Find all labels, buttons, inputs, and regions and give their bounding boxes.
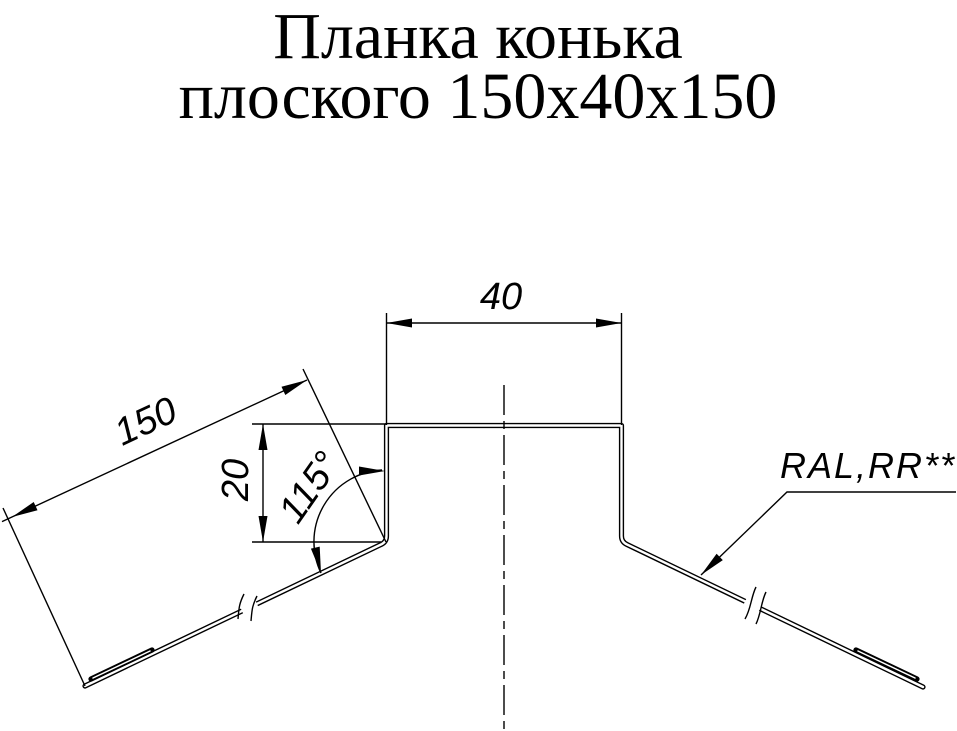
- coating-label: RAL,RR**: [780, 445, 956, 486]
- break-mark-left: [238, 594, 257, 621]
- title-line-2: плоского 150x40x150: [179, 60, 778, 133]
- dim-20-arrow-bottom: [259, 516, 268, 542]
- coating-leader: RAL,RR**: [701, 445, 956, 575]
- hem-right-white: [858, 651, 915, 678]
- dim-150-label: 150: [108, 389, 183, 454]
- drawing-canvas: Планка конька плоского 150x40x150: [0, 0, 957, 731]
- technical-drawing: Планка конька плоского 150x40x150: [0, 0, 957, 731]
- drawing-title: Планка конька плоского 150x40x150: [179, 0, 778, 133]
- dim-150-arrow-lower: [12, 502, 38, 517]
- break-left-gap: [242, 604, 257, 611]
- hem-left: [91, 650, 152, 679]
- dim-40-arrow-right: [596, 319, 622, 328]
- dimension-bend-angle: 115°: [271, 444, 385, 573]
- break-mark-right: [745, 587, 766, 624]
- break-right-gap: [745, 602, 760, 609]
- coating-leader-arrow: [701, 554, 723, 575]
- dim-40-arrow-left: [387, 319, 413, 328]
- dim-40-label: 40: [480, 276, 522, 318]
- dim-20-arrow-top: [259, 424, 268, 450]
- dim-150-arrow-upper: [282, 380, 308, 395]
- hem-left-white: [93, 651, 150, 678]
- coating-leader-line: [701, 492, 956, 575]
- hem-right: [856, 650, 917, 679]
- dim-115-arrow-bottom: [311, 547, 321, 573]
- dim-115-arrow-top: [359, 467, 385, 476]
- dimension-flange-length: 150: [2, 369, 386, 686]
- dim-150-ext-lower: [3, 508, 85, 686]
- dim-115-label: 115°: [271, 444, 349, 530]
- dim-20-label: 20: [215, 459, 257, 502]
